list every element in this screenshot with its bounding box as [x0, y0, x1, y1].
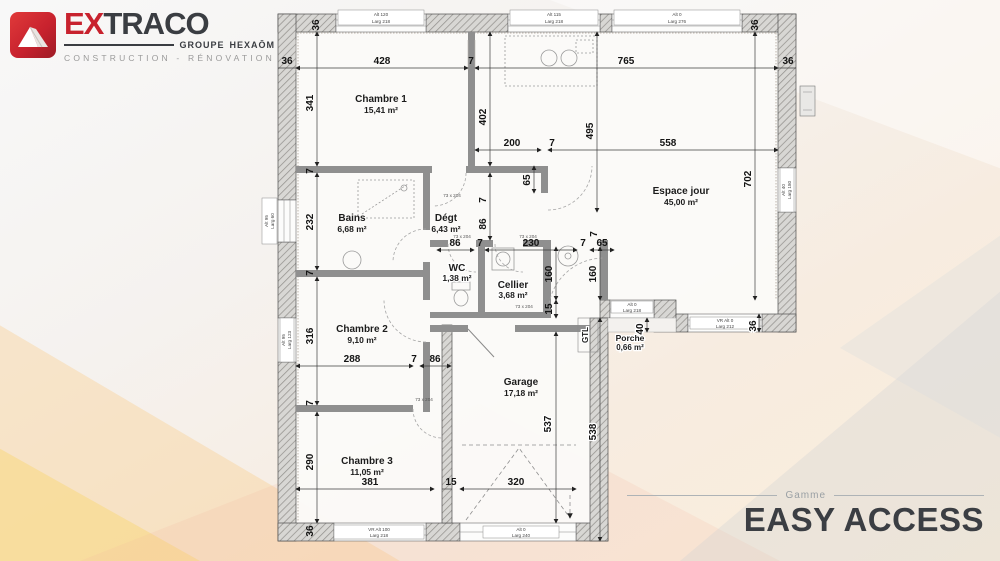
- dim-label: 402: [478, 108, 489, 125]
- room-area: 9,10 m²: [347, 335, 376, 345]
- dim-label: 15: [544, 303, 555, 315]
- room-name: Espace jour: [653, 186, 710, 197]
- dim-label: 7: [549, 138, 555, 149]
- dim-label: 230: [523, 238, 540, 249]
- window-label: VR Alt 100: [368, 527, 390, 532]
- dim-label: 36: [311, 19, 322, 31]
- window-label: Larg 218: [623, 308, 642, 313]
- dim-label: 538: [588, 423, 599, 440]
- room-area: 1,38 m²: [442, 273, 471, 283]
- dim-label: 7: [411, 354, 417, 365]
- dim-label: 36: [750, 19, 761, 31]
- window-label: Larg 218: [372, 19, 391, 24]
- dim-label: 7: [477, 238, 483, 249]
- window-label: Larg 60: [270, 213, 275, 229]
- room-area: 45,00 m²: [664, 197, 698, 207]
- window-label: Larg 276: [668, 19, 687, 24]
- dim-label: 36: [281, 56, 293, 67]
- dim-label: 36: [748, 320, 759, 332]
- room-area: 6,68 m²: [337, 224, 366, 234]
- dim-label: 232: [305, 213, 316, 230]
- window-label: Larg 212: [716, 324, 735, 329]
- room-name: Chambre 1: [355, 94, 407, 105]
- dim-label: 7: [305, 168, 316, 174]
- dim-label: 15: [445, 477, 457, 488]
- window-label: Alt 0: [627, 302, 637, 307]
- room-name: Bains: [338, 213, 366, 224]
- dim-label: 36: [782, 56, 794, 67]
- dim-label: 7: [468, 56, 474, 67]
- dim-label: 290: [305, 453, 316, 470]
- room-name: GTL: [581, 327, 590, 343]
- room-area: 0,66 m²: [616, 343, 644, 352]
- dim-label: 7: [580, 238, 586, 249]
- room-name: Garage: [504, 377, 539, 388]
- dim-label: 7: [478, 197, 489, 203]
- dim-label: 86: [478, 218, 489, 230]
- window-label: Larg 123: [287, 330, 292, 349]
- dim-label: 65: [522, 174, 533, 186]
- room-name: Chambre 2: [336, 324, 388, 335]
- dim-label: 200: [504, 138, 521, 149]
- dim-label: 765: [618, 56, 635, 67]
- window-label: Alt 120: [374, 12, 389, 17]
- door-size-label: 73 x 204: [515, 304, 533, 309]
- dim-label: 7: [589, 231, 600, 237]
- dim-label: 537: [543, 415, 554, 432]
- window-label: Alt 0: [516, 527, 526, 532]
- door-size-label: 73 x 204: [453, 234, 471, 239]
- dim-label: 341: [305, 94, 316, 111]
- room-area: 6,43 m²: [431, 224, 460, 234]
- exterior-unit: [800, 86, 815, 116]
- window-label: Larg 218: [370, 533, 389, 538]
- dim-label: 381: [362, 477, 379, 488]
- window-label: Larg 180: [787, 180, 792, 199]
- dim-label: 86: [429, 354, 441, 365]
- room-area: 3,68 m²: [498, 290, 527, 300]
- dim-label: 702: [743, 170, 754, 187]
- dim-label: 320: [508, 477, 525, 488]
- window-label: Larg 240: [512, 533, 531, 538]
- window-label: Alt 95: [264, 215, 269, 227]
- room-area: 11,05 m²: [350, 467, 384, 477]
- door-size-label: 73 x 204: [415, 397, 433, 402]
- window-label: Alt 95: [281, 334, 286, 346]
- dim-label: 7: [305, 400, 316, 406]
- dim-label: 160: [588, 265, 599, 282]
- dim-label: 495: [585, 122, 596, 139]
- dim-label: 7: [305, 270, 316, 276]
- room-name: Chambre 3: [341, 456, 393, 467]
- floor-plan-svg: Alt 120 Larg 218 Alt 115 Larg 218 Alt 0 …: [0, 0, 1000, 561]
- dim-label: 288: [344, 354, 361, 365]
- dim-label: 160: [544, 265, 555, 282]
- room-area: 17,18 m²: [504, 388, 538, 398]
- window-label: Larg 218: [545, 19, 564, 24]
- window-label: Alt 0: [672, 12, 682, 17]
- dim-label: 558: [660, 138, 677, 149]
- dim-label: 316: [305, 327, 316, 344]
- dim-label: 86: [449, 238, 461, 249]
- window-label: VR Alt 0: [717, 318, 734, 323]
- room-name: Porche: [616, 333, 645, 343]
- room-name: Dégt: [435, 213, 458, 224]
- door-size-label: 73 x 204: [443, 193, 461, 198]
- window-label: Alt 40: [781, 184, 786, 196]
- dim-label: 36: [305, 525, 316, 537]
- room-area: 15,41 m²: [364, 105, 398, 115]
- door-size-label: 73 x 204: [519, 234, 537, 239]
- window-label: Alt 115: [547, 12, 561, 17]
- dim-label: 65: [596, 238, 608, 249]
- dim-label: 428: [374, 56, 391, 67]
